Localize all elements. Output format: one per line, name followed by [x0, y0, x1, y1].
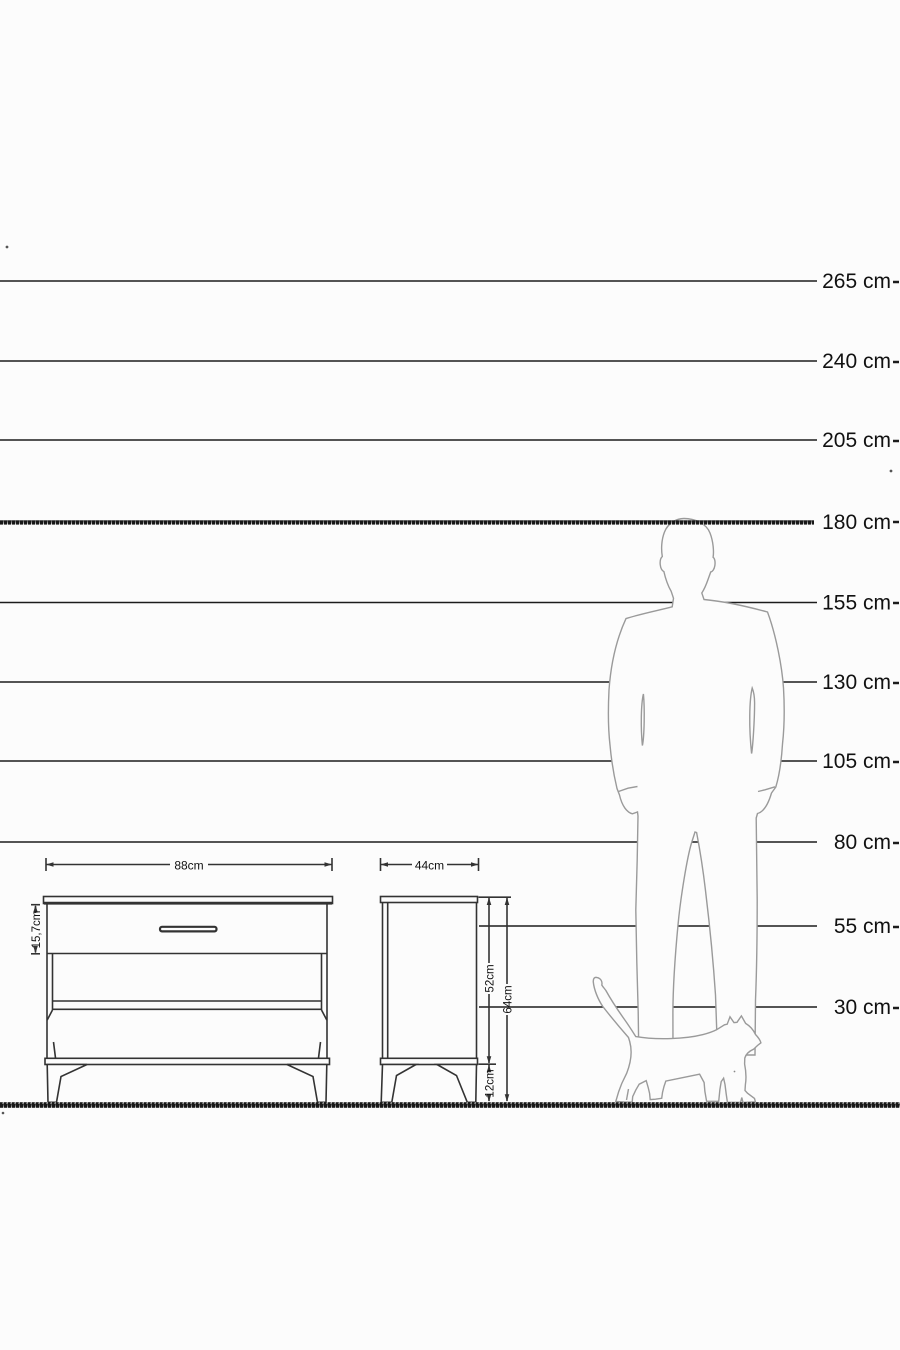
svg-text:30 cm: 30 cm: [834, 996, 891, 1019]
svg-text:105 cm: 105 cm: [822, 750, 891, 773]
svg-text:155 cm: 155 cm: [822, 592, 891, 615]
svg-text:64cm: 64cm: [503, 985, 515, 1013]
svg-text:88cm: 88cm: [174, 859, 203, 873]
svg-text:80 cm: 80 cm: [834, 831, 891, 854]
svg-text:55 cm: 55 cm: [834, 915, 891, 938]
svg-text:44cm: 44cm: [415, 859, 444, 873]
svg-text:15,7cm: 15,7cm: [31, 911, 43, 949]
svg-text:240 cm: 240 cm: [822, 350, 891, 373]
svg-text:180 cm: 180 cm: [822, 511, 891, 534]
svg-text:205 cm: 205 cm: [822, 429, 891, 452]
svg-text:130 cm: 130 cm: [822, 671, 891, 694]
svg-text:52cm: 52cm: [485, 964, 497, 992]
svg-text:12cm: 12cm: [485, 1069, 497, 1097]
svg-text:265 cm: 265 cm: [822, 270, 891, 293]
